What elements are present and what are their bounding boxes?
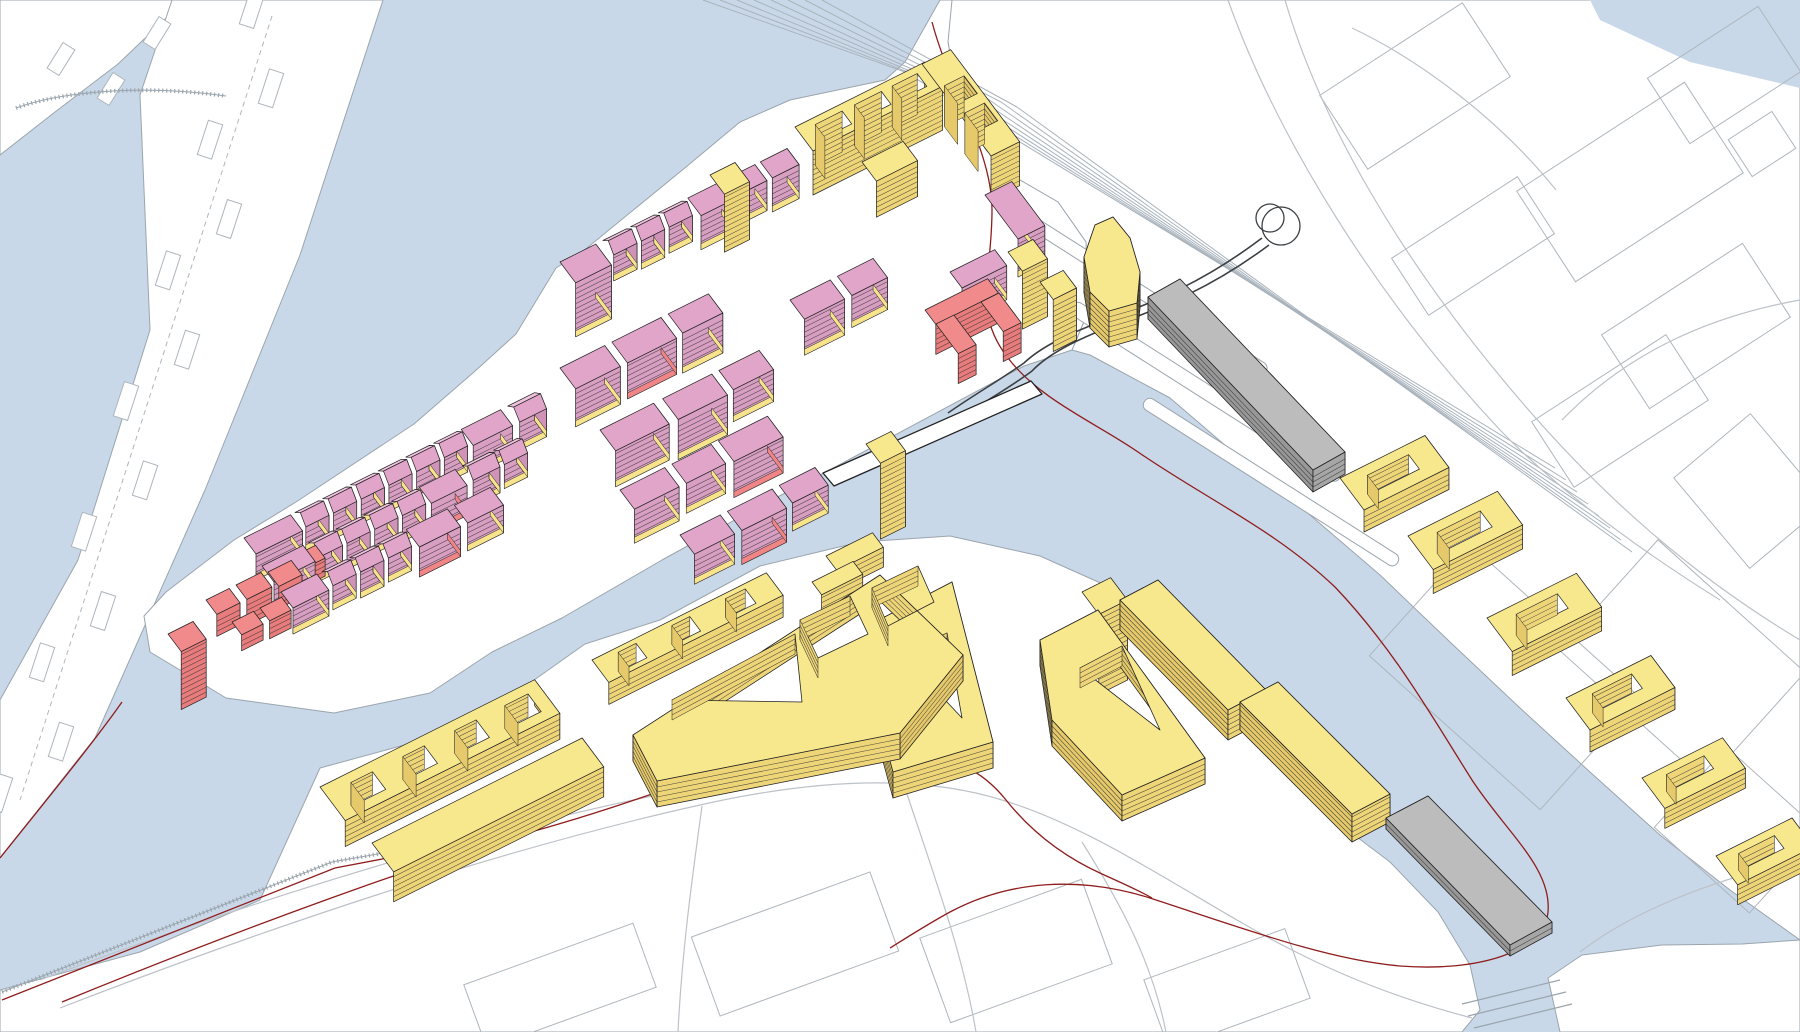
masterplan-stage bbox=[0, 0, 1800, 1032]
masterplan-axonometric-canvas bbox=[0, 0, 1800, 1032]
